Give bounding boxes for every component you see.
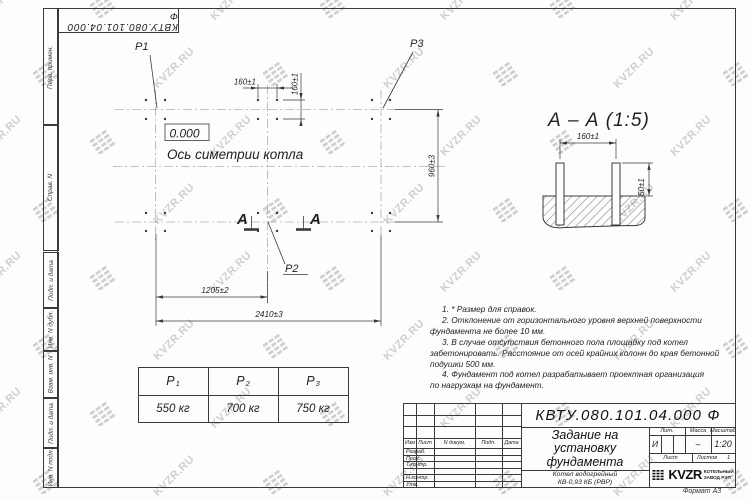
title-block: ИзмЛистN докум.Подп.Дата Разраб.Пров.Т.к… <box>403 403 736 488</box>
dim-960: 960±3 <box>428 154 437 177</box>
p2-leader <box>268 222 285 264</box>
frame-strip-label: Взам. инв. N <box>43 350 59 399</box>
watermark-text: KVZR.RU <box>0 385 24 431</box>
format-label: Формат А3 <box>662 488 742 495</box>
company-logo-cell: KVZR КОТЕЛЬНЫЙ ЗАВОД РЭП <box>650 462 735 487</box>
note-line: фундамента не более 10 мм. <box>430 326 732 337</box>
section-title: А – А (1:5) <box>547 110 650 131</box>
anchor-bolt-right <box>612 163 620 225</box>
dim-1205: 1205±2 <box>201 286 229 295</box>
scale-value: 1:20 <box>711 435 735 453</box>
p1-label: P1 <box>135 41 148 53</box>
rev-header: Изм <box>404 438 416 448</box>
plan-view: P1 P3 P2 160±1 160±1 960±3 1205± <box>55 28 455 348</box>
anchor-bolt-left <box>556 163 564 225</box>
note-line: 4. Фундамент под котел разрабатывает про… <box>430 369 732 380</box>
p3-leader <box>383 52 413 108</box>
watermark-text: KVZR.RU <box>0 249 24 295</box>
note-line: 1. * Размер для справок. <box>430 304 732 315</box>
p3-label: P3 <box>410 38 424 50</box>
kvzr-logo-icon <box>651 468 666 482</box>
load-table-value: 700 кг <box>208 395 279 423</box>
rev-row-label: Пров. <box>406 456 420 462</box>
load-table-value: 550 кг <box>138 395 209 423</box>
rev-header: Подп. <box>475 438 502 448</box>
drawing-title-line: фундамента <box>547 456 624 470</box>
sheet-label: Лист <box>649 453 692 462</box>
drawing-title: Задание наустановкуфундамента <box>521 428 649 470</box>
symmetry-axis-label: Ось симетрии котла <box>167 147 304 162</box>
company-subtitle: КОТЕЛЬНЫЙ ЗАВОД РЭП <box>704 469 734 480</box>
rev-header: Дата <box>502 438 521 448</box>
drawing-title-line: Задание на <box>552 429 619 443</box>
p1-leader <box>150 55 157 108</box>
technical-notes: 1. * Размер для справок.2. Отклонение от… <box>430 304 732 391</box>
document-number: КВТУ.080.101.04.000 Ф <box>521 404 735 427</box>
watermark-text: KVZR.RU <box>0 113 24 159</box>
product-name-line: КВ-0,93 КБ (РВР) <box>558 479 612 487</box>
scale-header: Масштаб <box>711 427 735 435</box>
load-table-header: P3 <box>278 367 349 396</box>
load-table-value: 750 кг <box>278 395 349 423</box>
load-table: P1P2P3550 кг700 кг750 кг <box>138 367 348 422</box>
product-name-line: Котел водогрейный <box>553 471 618 479</box>
note-line: подушки 500 мм. <box>430 359 732 370</box>
drawing-title-line: установку <box>554 442 616 456</box>
company-name: KVZR <box>668 467 701 482</box>
section-view: А – А (1:5) 160±1 50±1 <box>520 95 710 240</box>
rev-row-label: Разраб. <box>406 449 426 455</box>
watermark-text: KVZR.RU <box>0 0 24 23</box>
product-name: Котел водогрейныйКВ-0,93 КБ (РВР) <box>521 470 649 487</box>
dim-2410: 2410±3 <box>254 310 283 319</box>
note-line: забетонировать. Расстояние от осей крайн… <box>430 348 732 359</box>
frame-strip-label: Инв. N подл. <box>43 447 59 488</box>
mass-value: – <box>685 435 711 453</box>
anchor-bolt-dots <box>145 99 391 232</box>
load-table-header: P1 <box>138 367 209 396</box>
section-dim-50: 50±1 <box>637 178 646 196</box>
rev-row-label: Утв. <box>406 482 418 488</box>
load-table-header: P2 <box>208 367 279 396</box>
note-line: 2. Отклонение от горизонтального уровня … <box>430 315 732 326</box>
dim-160-vertical: 160±1 <box>291 73 300 95</box>
section-mark-left: А <box>236 211 248 228</box>
note-line: 3. В случае отсутствия бетонного пола пл… <box>430 337 732 348</box>
sheets-label: Листов <box>692 453 722 462</box>
rev-row-label: Н.контр. <box>406 475 429 481</box>
sheets-value: 1 <box>722 453 735 462</box>
rev-header: N докум. <box>434 438 475 448</box>
elevation-mark: 0.000 <box>170 127 200 141</box>
section-dim-160: 160±1 <box>577 132 599 141</box>
note-line: по нагрузкам на фундамент. <box>430 380 732 391</box>
mass-header: Масса <box>685 427 711 435</box>
rev-row-label: Т.контр. <box>406 462 428 468</box>
p2-label: P2 <box>285 263 298 275</box>
lit-header: Лит. <box>649 427 685 435</box>
frame-strip-label: Подп. и дата <box>43 397 59 449</box>
dim-160-horizontal: 160±1 <box>234 78 256 87</box>
lit-value: И <box>649 435 661 453</box>
section-mark-right: А <box>309 211 321 228</box>
rev-header: Лист <box>416 438 434 448</box>
drawing-sheet: KVZR.RU KVZR.RU KVZR.RU KVZR.RU KVZR.RU … <box>0 0 750 500</box>
